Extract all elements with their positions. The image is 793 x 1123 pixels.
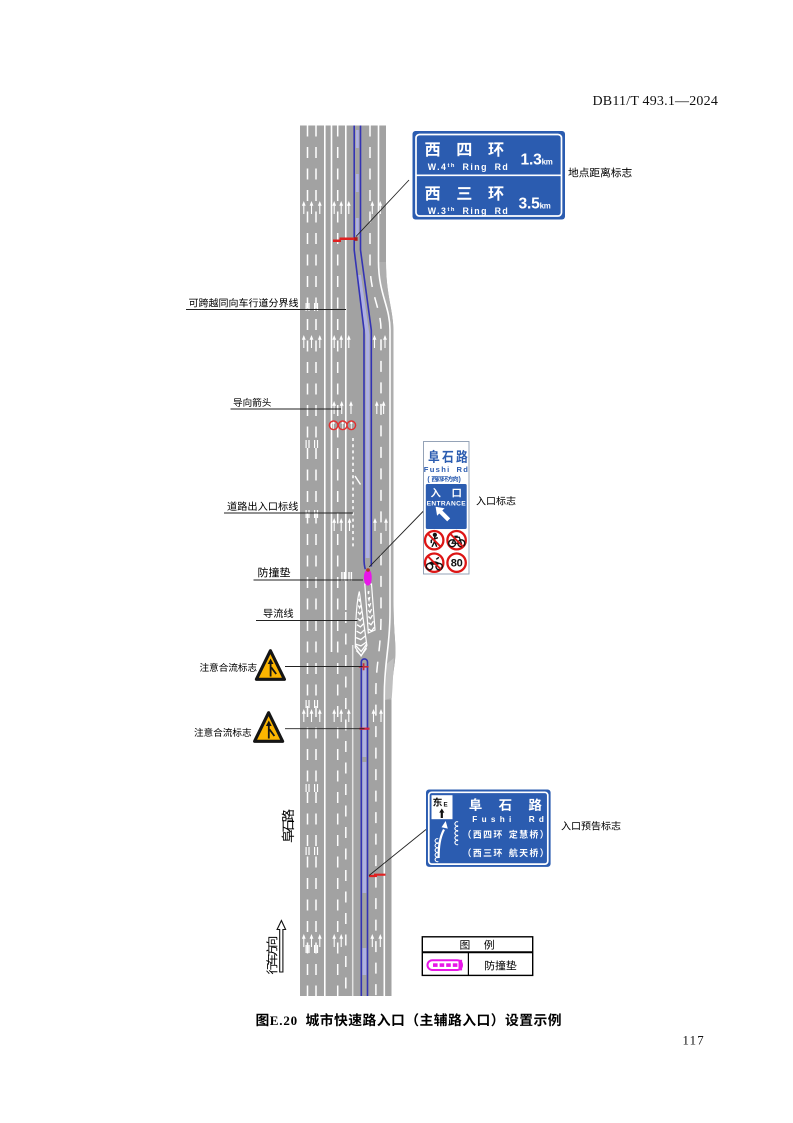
svg-text:W.3th Ring Rd: W.3th Ring Rd bbox=[428, 206, 510, 216]
svg-text:DB11/T 493.1—2024: DB11/T 493.1—2024 bbox=[593, 94, 719, 109]
svg-text:Fushi Rd: Fushi Rd bbox=[472, 815, 548, 824]
svg-text:117: 117 bbox=[683, 1034, 705, 1048]
svg-text:E.20: E.20 bbox=[270, 1013, 298, 1028]
svg-text:): ) bbox=[459, 476, 461, 483]
svg-text:ENTRANCE: ENTRANCE bbox=[427, 500, 467, 507]
svg-text:Fushi Rd: Fushi Rd bbox=[424, 465, 469, 474]
svg-text:80: 80 bbox=[451, 558, 463, 570]
svg-text:E: E bbox=[444, 801, 448, 808]
svg-text:W.4th Ring Rd: W.4th Ring Rd bbox=[428, 162, 510, 172]
